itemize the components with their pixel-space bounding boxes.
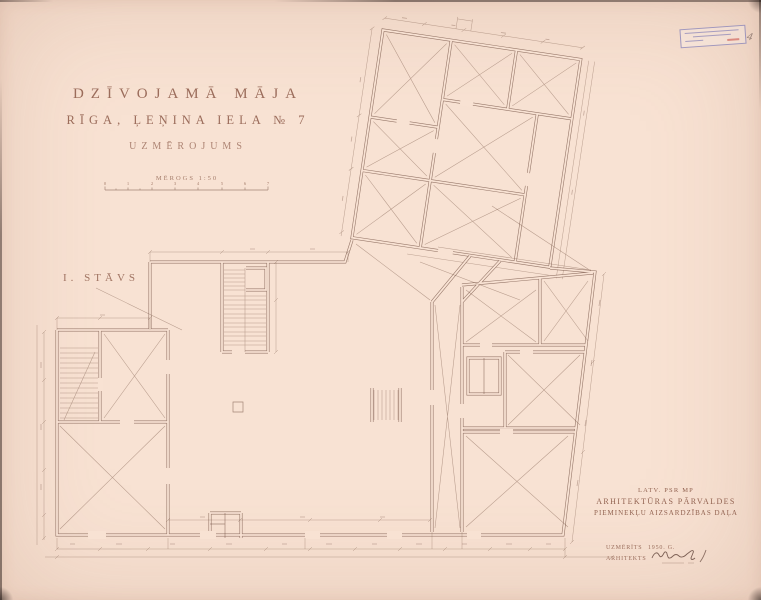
measured-label: UZMĒRĪTS xyxy=(606,545,642,551)
survey-triangulation-lines xyxy=(96,206,591,330)
architect-signature xyxy=(648,547,710,567)
column-and-details xyxy=(210,358,484,538)
wing-room-diagonals xyxy=(357,35,577,263)
dimension-lines xyxy=(37,249,614,559)
scale-tick: 2 xyxy=(151,181,154,186)
stamp-red-mark xyxy=(727,38,739,41)
scale-tick: 7 xyxy=(267,181,270,186)
agency-block: LATV. PSR MP ARHITEKTŪRAS PĀRVALDES PIEM… xyxy=(568,487,761,517)
scale-bar: MĒROGS 1:50 0 1 2 3 4 5 6 7 xyxy=(104,175,270,190)
agency-line-2: ARHITEKTŪRAS PĀRVALDES xyxy=(568,497,761,506)
agency-line-1: LATV. PSR MP xyxy=(568,487,761,494)
scan-artifact-top-edge xyxy=(0,0,761,2)
main-door-gaps xyxy=(88,342,533,539)
floor-label: I. STĀVS xyxy=(63,272,139,284)
wing-block xyxy=(336,4,599,279)
scale-tick: 0 xyxy=(104,181,107,186)
scale-tick: 5 xyxy=(221,181,224,186)
agency-line-3: PIEMINEKĻU AIZSARDZĪBAS DAĻA xyxy=(568,509,761,517)
scan-artifact-corner xyxy=(748,0,761,13)
drawing-address: RĪGA, ĻEŅINA IELA № 7 xyxy=(38,113,338,128)
scan-artifact-corner xyxy=(0,587,13,600)
architect-label: ARHITEKTS xyxy=(606,556,647,562)
scale-tick: 6 xyxy=(244,181,247,186)
wing-dimension-lines xyxy=(338,4,599,279)
title-block: DZĪVOJAMĀ MĀJA RĪGA, ĻEŅINA IELA № 7 UZM… xyxy=(38,86,338,152)
scan-artifact-corner xyxy=(748,587,761,600)
drawing-sheet: MĒROGS 1:50 0 1 2 3 4 5 6 7 DZĪVOJAMĀ MĀ… xyxy=(0,0,761,600)
scale-tick: 1 xyxy=(127,181,130,186)
scan-artifact-left-edge xyxy=(0,78,2,600)
stair-treads xyxy=(60,268,398,420)
scale-label: MĒROGS 1:50 xyxy=(156,175,218,182)
main-block xyxy=(57,206,595,539)
drawing-title: DZĪVOJAMĀ MĀJA xyxy=(38,86,338,103)
drawing-subtitle: UZMĒROJUMS xyxy=(38,141,338,152)
